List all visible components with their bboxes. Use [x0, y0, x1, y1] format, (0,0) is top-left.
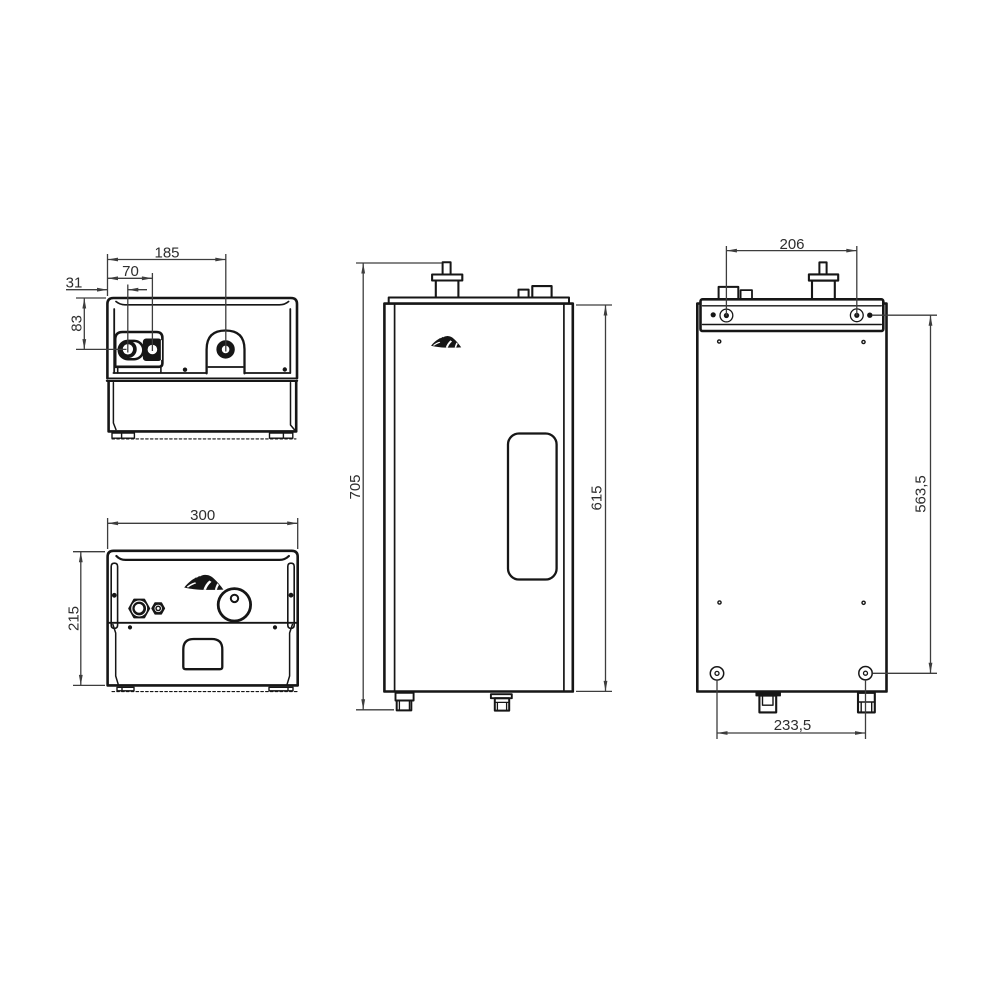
svg-text:206: 206: [779, 236, 804, 253]
svg-text:233,5: 233,5: [774, 717, 812, 734]
svg-text:615: 615: [589, 485, 606, 510]
svg-text:563,5: 563,5: [912, 475, 929, 513]
svg-text:215: 215: [66, 606, 83, 631]
svg-text:705: 705: [347, 474, 364, 499]
svg-text:185: 185: [154, 245, 179, 262]
svg-text:31: 31: [66, 275, 83, 292]
svg-text:70: 70: [122, 263, 139, 280]
svg-text:300: 300: [190, 507, 215, 524]
svg-text:83: 83: [68, 315, 85, 332]
